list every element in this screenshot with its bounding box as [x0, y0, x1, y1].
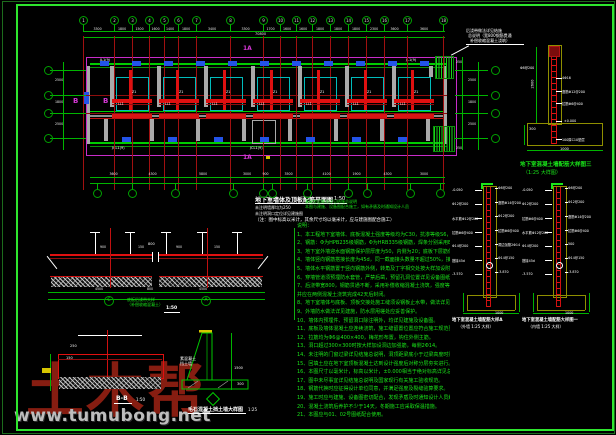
grid-bubble-bottom: [344, 189, 353, 198]
bottom-dim-text: 4300: [384, 172, 392, 176]
raft-scale-underline: [164, 312, 180, 313]
top-dim-text: 1400: [166, 27, 174, 31]
detail-label-right: Φ8@200: [568, 186, 582, 190]
bb-dim1: 150: [66, 356, 73, 360]
notes-line: 15、回填土应在地下室顶板混凝土达到设计强度后对称分层夯实进行。: [297, 360, 450, 367]
notes-bracket-line: [294, 228, 295, 320]
raft-top-dim: 150: [214, 245, 220, 249]
blue-clip-top: [196, 61, 205, 66]
notes-line: 7、后浇带宽800，钢筋贯通不断，采用补偿收缩混凝土浇筑，强度等级提高一级，: [297, 282, 450, 289]
raft-gap-dim: 800: [148, 242, 155, 246]
line: [253, 114, 293, 118]
retain-title: 毛石混凝土挡土墙大样图: [188, 406, 243, 413]
top-dim-text: 1700: [267, 27, 275, 31]
line: [330, 24, 331, 32]
blue-clip-bottom: [214, 137, 223, 142]
bay-beam-tag: LL1: [259, 102, 265, 106]
line: [545, 246, 552, 247]
section-mark-1a-bottom: 1A: [243, 154, 252, 161]
detail-footing-dim: 1000: [495, 311, 503, 315]
line: [392, 66, 396, 77]
line: [125, 232, 135, 233]
row-bubble-left: [44, 91, 53, 100]
line: [455, 138, 488, 139]
bottom-dim-text: 1900: [353, 172, 361, 176]
line: [298, 77, 302, 107]
line: [110, 77, 114, 107]
line: [63, 62, 64, 150]
line: [149, 24, 150, 32]
grid-bubble: 5: [160, 16, 169, 25]
line: [251, 77, 255, 107]
wall3-rebar-left: [551, 46, 552, 144]
grid-bubble: 17: [403, 16, 412, 25]
bottom-dim-text: 3000: [420, 172, 428, 176]
line: [345, 77, 349, 107]
grid-bubble-bottom: [128, 189, 137, 198]
grid-bubble: 12: [308, 16, 317, 25]
raft-red-bar1: [110, 228, 111, 288]
detail-label-left: Φ14@200: [522, 244, 538, 248]
line: [83, 24, 84, 32]
line: [537, 295, 538, 310]
line: [83, 37, 445, 38]
notes-line: 10、墙体内预埋件、预留洞口除注明外，均详见建施及设备图。: [297, 317, 438, 324]
line: [242, 119, 246, 141]
detail-label-left: 拉筋Φ6@400: [522, 216, 543, 221]
line: [455, 70, 488, 71]
raft-scale: 1:50: [166, 306, 177, 311]
grid-bubble: 11: [292, 16, 301, 25]
notes-line: 4、墙体竖向钢筋搭接长度为45d，同一截面接头数量不超过50%，接头相互错开50…: [297, 256, 450, 263]
top-dim-text: 3300: [242, 27, 250, 31]
line: [161, 232, 171, 233]
line: [110, 66, 114, 77]
total-dim-text: 70800: [255, 32, 266, 36]
notes-line: 18、钢筋代换时应征得设计单位同意，并满足强度及裂缝验算要求。: [297, 385, 448, 392]
line: [164, 24, 165, 32]
bay-beam-tag: LL1: [118, 102, 124, 106]
wall3-dim-line: [536, 47, 537, 123]
line: [545, 260, 552, 261]
detail-label-right: 洞边加筋2Φ14: [498, 242, 520, 247]
bay-beam-tag: LL1: [353, 102, 359, 106]
line: [475, 232, 482, 233]
plan-mid-red-bottom: [90, 118, 447, 119]
plan-green-note2: 本图与建施、设备图配合施工，如有矛盾及时通知设计人员: [305, 204, 409, 210]
blue-clip-top: [420, 61, 429, 66]
right-dim-text: 1800: [468, 100, 476, 104]
line: [348, 24, 349, 32]
bottom-dim-text: 4300: [149, 172, 157, 176]
wall3-rebar-right: [556, 46, 557, 144]
line: [95, 233, 96, 254]
line: [114, 24, 115, 32]
grid-bubble: 7: [192, 16, 201, 25]
top-dim-text: 1800: [118, 27, 126, 31]
line: [392, 77, 396, 107]
raft-bottom-dim: 4500: [199, 287, 207, 291]
grid-bubble-bottom: [93, 189, 102, 198]
notes-line: 8、地下室墙体与底板、顶板交接处施工缝须设钢板止水带，做法详见大样图。: [297, 299, 450, 306]
grid-bubble-bottom: [363, 189, 372, 198]
line: [196, 24, 197, 32]
raft-dim-line1: [48, 292, 265, 293]
grid-bubble: 16: [380, 16, 389, 25]
plan-hatch-area-top: [435, 56, 454, 79]
grid-bubble-bottom: [171, 189, 180, 198]
blue-clip-bottom: [122, 137, 131, 142]
detail-label-left: 拉筋Φ6@400: [452, 230, 473, 235]
blue-clip-top: [388, 61, 397, 66]
line: [197, 232, 207, 233]
line: [556, 121, 562, 122]
line: [565, 188, 568, 189]
line: [130, 233, 131, 254]
detail-label-left: 搭接45d: [522, 258, 535, 263]
notes-line: 9、外墙防水做法详见建施，防水层甩槎处应妥善保护。: [297, 308, 420, 315]
line: [166, 233, 167, 254]
cad-drawing-canvas[interactable]: 土木帮 www.tumubong.net 1A 1A B B JL1(9) JL…: [0, 0, 616, 435]
grid-bubble-bottom: [259, 189, 268, 198]
blue-clip-top: [100, 61, 109, 66]
top-dim-text: 3400: [208, 27, 216, 31]
line: [132, 24, 133, 32]
detail-label-right: Φ12@200: [498, 214, 514, 218]
grid-bubble: 1: [79, 16, 88, 25]
line: [334, 119, 338, 141]
detail-label-left: Φ14@200: [452, 244, 468, 248]
line: [565, 216, 568, 217]
bottom-dim-text: 5800: [199, 172, 207, 176]
left-dim-text: 1800: [55, 100, 63, 104]
raft-top-dim: 900: [100, 245, 106, 249]
line: [104, 119, 108, 141]
raft-grid-bubble: A: [201, 296, 211, 306]
section-mark-b2: B: [103, 97, 108, 105]
detail-ring-marker: [556, 262, 563, 269]
wall3-label-right: 100厚C10垫层: [562, 137, 585, 142]
line: [545, 274, 552, 275]
grid-bubble: 3: [128, 16, 137, 25]
top-dim-text: 1500: [136, 27, 144, 31]
bb-dim2: 250: [70, 344, 77, 348]
line: [90, 177, 445, 178]
bottom-dim-text: 900: [263, 172, 269, 176]
line: [467, 295, 468, 310]
blue-clip-top: [260, 61, 269, 66]
raft-bottom-dim: 800: [147, 287, 153, 291]
line: [178, 24, 179, 32]
line: [589, 293, 590, 312]
grid-bubble-bottom: [303, 189, 312, 198]
detail-label-left: Φ12@200: [522, 202, 538, 206]
top-dim-text: 3600: [391, 27, 399, 31]
grid-bubble: 13: [326, 16, 335, 25]
line: [251, 66, 255, 77]
line: [50, 113, 86, 114]
line: [486, 187, 487, 307]
line: [545, 218, 552, 219]
detail-subtitle: （内墙 1:25 大样）: [528, 324, 564, 330]
detail-label-right: Φ8@200: [498, 186, 512, 190]
bay-beam-tag: LL1: [306, 102, 312, 106]
row-bubble-right: [491, 91, 500, 100]
right-end-dim: 250: [456, 146, 462, 150]
section-mark-b1: B: [73, 97, 78, 105]
line: [495, 188, 498, 189]
line: [380, 119, 384, 141]
line: [556, 78, 562, 79]
line: [545, 204, 552, 205]
blue-clip-top: [132, 61, 141, 66]
line: [537, 295, 585, 296]
bottom-dim-text: 3600: [110, 172, 118, 176]
line: [407, 24, 408, 32]
notes-line: 11、底板及墙体混凝土应连续浇筑，施工缝留置位置应符合施工规范要求。: [297, 325, 450, 332]
line: [565, 202, 568, 203]
notes-line: 19、施工时应与建施、设备图密切配合，发现矛盾及时通知设计人员解决。: [297, 394, 450, 401]
bb-slab-inner: [58, 359, 162, 360]
wall3-dim-h: 2600: [530, 80, 534, 89]
wall3-label-right: 4Φ16: [562, 76, 571, 80]
raft-bottom-dim: 4500: [95, 287, 103, 291]
retain-dim-h: 1500: [234, 366, 243, 370]
line: [384, 24, 385, 32]
grid-bubble: 8: [226, 16, 235, 25]
retain-scale: 1:25: [248, 407, 257, 412]
line: [475, 246, 482, 247]
line: [463, 313, 519, 314]
blue-clip-top: [292, 61, 301, 66]
detail-label-right: 竖筋Φ14@200: [568, 214, 591, 219]
grid-bubble-bottom: [229, 189, 238, 198]
line: [455, 113, 488, 114]
plan-mid-beam: [90, 111, 447, 112]
row-bubble-left: [44, 109, 53, 118]
line: [50, 70, 86, 71]
line: [533, 313, 589, 314]
line: [467, 310, 515, 311]
bottom-dim-text: 3500: [285, 172, 293, 176]
blue-clip-top: [228, 61, 237, 66]
line: [565, 272, 568, 273]
notes-line: 20、混凝土浇筑后养护不少于14天，冬期施工应采取保温措施。: [297, 403, 440, 410]
blue-clip-top: [356, 61, 365, 66]
grid-bubble: 18: [439, 16, 448, 25]
raft-top-dim: 900: [176, 245, 182, 249]
detail-label-left: -3.570: [452, 272, 463, 276]
line: [196, 119, 200, 141]
grid-bubble-bottom: [268, 189, 277, 198]
line: [298, 66, 302, 77]
detail-label-right: Φ14@150: [568, 256, 584, 260]
top-dim-text: 1600: [283, 27, 291, 31]
grid-bubble: 9: [259, 16, 268, 25]
line: [296, 24, 297, 32]
line: [467, 295, 515, 296]
section-mark-1a-top: 1A: [243, 45, 252, 52]
plan-hatch-area-bottom: [433, 126, 455, 152]
line: [455, 95, 488, 96]
line: [312, 24, 313, 32]
bb-concrete-hatch: [59, 377, 161, 389]
line: [202, 233, 203, 254]
notes-line: 21、本图应与01、02号图纸配合使用。: [297, 411, 386, 418]
line: [300, 114, 340, 118]
detail-footing-dim: 1000: [565, 311, 573, 315]
raft-red-bar2: [207, 228, 208, 288]
line: [475, 260, 482, 261]
detail-label-right: -3.870: [498, 270, 509, 274]
line: [426, 119, 430, 141]
wall3-label-right: 竖筋Φ12@200: [562, 89, 585, 94]
line: [50, 138, 86, 139]
detail-label-right: 拉筋Φ6@400: [568, 228, 589, 233]
line: [280, 24, 281, 32]
line: [347, 114, 387, 118]
wall3-dim-step: 300: [529, 127, 536, 131]
wall3-label-left: Φ8@200: [520, 66, 534, 70]
bb-yellow-marker: [42, 368, 51, 373]
line: [288, 119, 292, 141]
retain-label2: 挡土墙: [180, 361, 192, 367]
notes-line: 6、穿墙管道须预埋防水套管，严禁后凿，预留孔洞位置详见设备图纸。: [297, 274, 450, 281]
wall3-label-right: ±0.000: [564, 119, 576, 123]
blue-clip-bottom: [306, 137, 315, 142]
grid-bubble: 10: [276, 16, 285, 25]
detail-label-left: Φ12@200: [452, 202, 468, 206]
line: [50, 95, 86, 96]
line: [556, 103, 562, 104]
line: [150, 119, 154, 141]
bb-title-underline: [114, 403, 132, 404]
grid-bubble: 14: [344, 16, 353, 25]
bay-column-tag: Z1: [320, 90, 324, 94]
raft-top-dim: 150: [138, 245, 144, 249]
grid-bubble-bottom: [406, 189, 415, 198]
bay-column-tag: Z1: [414, 90, 418, 94]
line: [159, 114, 199, 118]
plan-left-blue-clip: [84, 92, 89, 104]
retain-title-underline: [188, 413, 246, 414]
line: [232, 232, 242, 233]
notes-line: 17、图中未尽事宜详见结施总说明及国家现行有关施工验收规范。: [297, 377, 443, 384]
row-bubble-left: [44, 134, 53, 143]
blue-clip-top: [324, 61, 333, 66]
line: [495, 230, 498, 231]
line: [490, 187, 491, 307]
wall3-dim-w: 1000: [560, 147, 569, 151]
detail-label-right: 500: [568, 242, 574, 246]
line: [463, 293, 464, 312]
line: [157, 66, 161, 77]
detail-label-left: -0.050: [452, 188, 463, 192]
detail-label-right: Φ12@200: [568, 200, 584, 204]
line: [204, 66, 208, 77]
blue-clip-bottom: [398, 137, 407, 142]
wall3-title: 地下室混凝土墙配筋大样图三: [520, 160, 592, 168]
blue-clip-bottom: [352, 137, 361, 142]
line: [204, 77, 208, 107]
line: [345, 66, 349, 77]
top-dim-text: 1600: [299, 27, 307, 31]
wall3-footing-bottom: [527, 145, 603, 146]
bb-title: B-B: [116, 395, 128, 402]
top-dim-text: 1800: [334, 27, 342, 31]
notes-line: 5、墙体水平钢筋置于竖向钢筋外侧，转角及丁字相交处按大样加设附加筋。: [297, 265, 450, 272]
line: [495, 272, 498, 273]
line: [366, 24, 367, 32]
bay-column-tag: Z1: [273, 90, 277, 94]
raft-grid-bubble: C: [104, 296, 114, 306]
line: [475, 204, 482, 205]
raft-gap-edge1: [152, 252, 153, 262]
notes-line: 14、未注明的门窗过梁详见结施总说明，洞顶距梁底小于过梁高度时梁下挂板。: [297, 351, 450, 358]
top-dim-text: 2300: [370, 27, 378, 31]
line: [495, 258, 498, 259]
line: [560, 187, 561, 307]
line: [443, 24, 444, 32]
line: [157, 77, 161, 107]
bay-column-tag: Z1: [132, 90, 136, 94]
line: [556, 91, 562, 92]
line: [112, 114, 152, 118]
bb-top-cap: [78, 335, 142, 336]
wall3-footing-dim: [524, 125, 525, 145]
line: [475, 274, 482, 275]
bb-slab: [58, 354, 164, 379]
line: [585, 295, 586, 310]
wall3-footing-left: [527, 123, 528, 145]
notes-line: 并应在两侧混凝土浇筑完成42天后封闭。: [297, 291, 388, 298]
wall3-label-right: 拉筋Φ6@400: [562, 101, 583, 106]
bay-beam-tag: LL1: [165, 102, 171, 106]
row-bubble-right: [491, 66, 500, 75]
detail-label-right: Φ14@150: [498, 256, 514, 260]
raft-gap-edge2: [158, 252, 159, 262]
line: [230, 24, 231, 32]
bottom-dim-text: 4100: [323, 172, 331, 176]
wall3-footing-top: [527, 123, 603, 124]
leader-underline: [466, 44, 524, 45]
bay-beam-tag: LL1: [400, 102, 406, 106]
detail-label-left: 搭接45d: [452, 258, 465, 263]
bay-column-tag: Z1: [179, 90, 183, 94]
line: [556, 139, 562, 140]
bb-scale: 1:50: [136, 397, 145, 402]
line: [478, 62, 479, 150]
plan-bottom-beam-inner: [90, 146, 447, 147]
bay-column-tag: Z1: [367, 90, 371, 94]
line: [429, 66, 433, 77]
top-dim-text: 3600: [420, 27, 428, 31]
line: [519, 293, 520, 312]
retain-dim-w: 300: [237, 382, 244, 386]
line: [565, 258, 568, 259]
line: [475, 190, 482, 191]
line: [565, 244, 568, 245]
yellow-marker: [266, 156, 270, 159]
notes-line: 12、拉筋均为Φ6@400×400，梅花形布置，钩住外侧主筋。: [297, 334, 434, 341]
grid-bubble: 4: [145, 16, 154, 25]
line: [475, 218, 482, 219]
line: [90, 183, 445, 184]
line: [495, 216, 498, 217]
line: [515, 295, 516, 310]
detail-ring-marker: [486, 262, 493, 269]
detail-subtitle: （外墙 1:25 大样）: [458, 324, 494, 330]
